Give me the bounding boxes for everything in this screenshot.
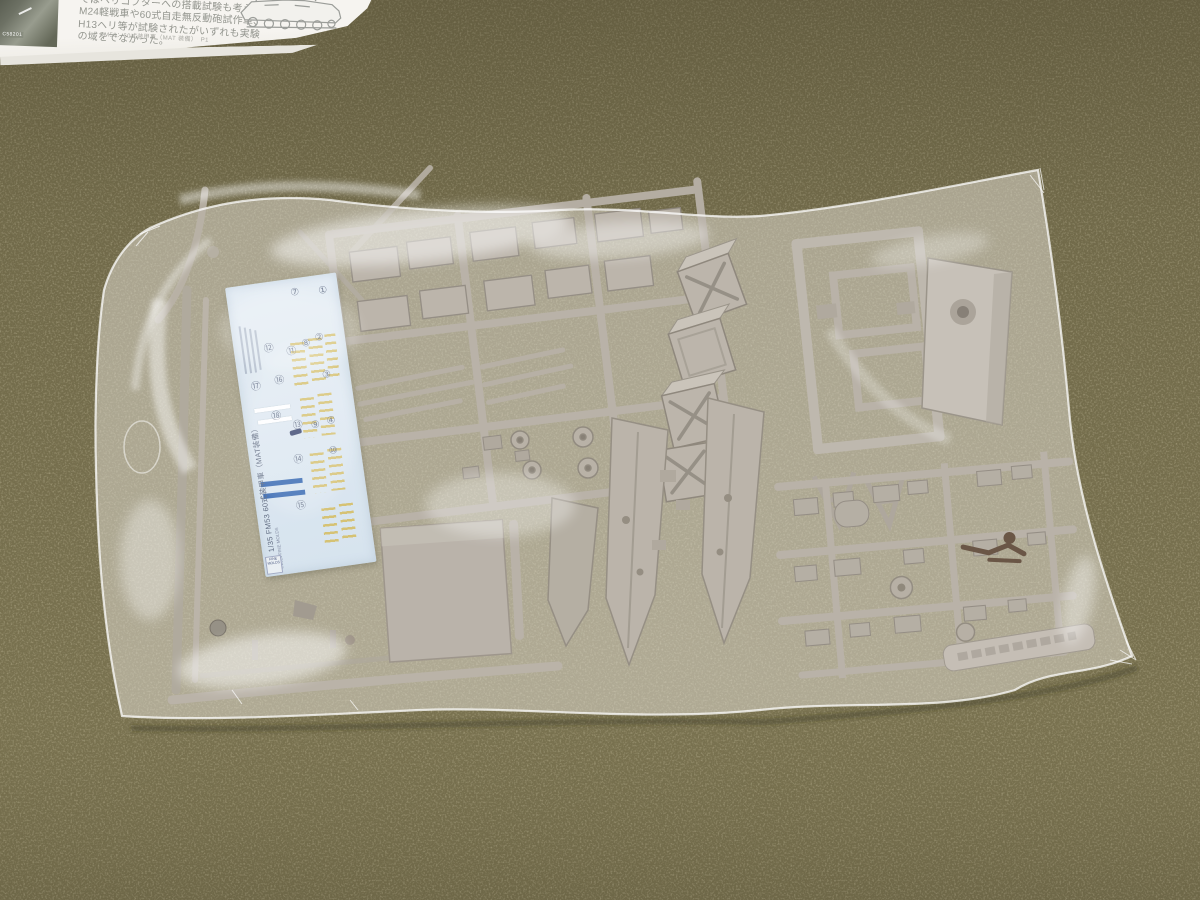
photo-scene: ①②③④⑦⑧⑨⑩⑪⑫⑬⑭⑮⑯⑰⑱ 1/35 FM53 60式装甲車（MAT装備）…	[0, 0, 1200, 900]
decal-yellow-markings	[300, 397, 318, 438]
decal-circled-number: ⑨	[310, 420, 320, 431]
decal-yellow-markings	[310, 452, 328, 493]
decal-yellow-markings	[321, 507, 339, 544]
square-plate-part	[380, 520, 524, 662]
decal-circled-number: ③	[322, 370, 332, 381]
decal-circled-number: ⑮	[296, 501, 307, 512]
decal-circled-number: ⑩	[328, 446, 338, 457]
decal-circled-number: ①	[318, 286, 328, 297]
decal-circled-number: ⑪	[286, 347, 297, 358]
photo-caption-label: C58201	[1, 31, 23, 38]
decal-circled-number: ④	[326, 416, 336, 427]
decal-circled-number: ⑧	[301, 339, 311, 350]
decal-circled-number: ⑦	[290, 288, 300, 299]
reference-photo: C58201	[0, 0, 59, 47]
decal-circled-number: ⑰	[251, 382, 262, 393]
decal-circled-number: ⑱	[271, 411, 282, 422]
decal-circled-number: ⑭	[293, 455, 304, 466]
bag-and-sprues	[0, 0, 1200, 900]
hull-plate-part	[922, 258, 1012, 425]
decal-circled-number: ⑬	[292, 421, 303, 432]
fine-molds-logo: FINE MOLDS	[265, 555, 283, 575]
decal-circled-number: ⑫	[263, 344, 274, 355]
decal-circled-number: ②	[314, 333, 324, 344]
decal-circled-number: ⑯	[274, 376, 285, 387]
decal-yellow-markings	[339, 503, 357, 540]
